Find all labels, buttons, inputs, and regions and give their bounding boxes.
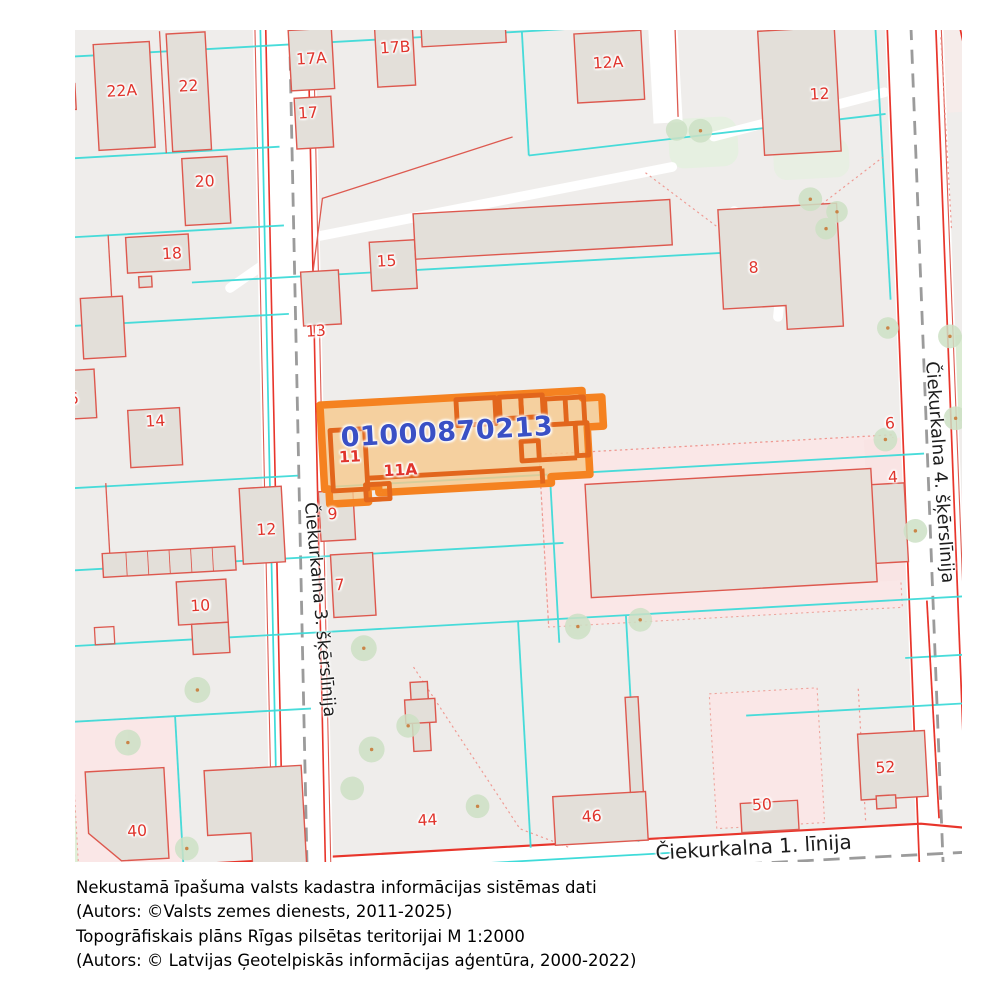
cadastre-map-page: 22A 22 17A 17B 17 20 18 12A 12 15 13 8 1… bbox=[0, 0, 1000, 1000]
attribution-block: Nekustamā īpašuma valsts kadastra inform… bbox=[76, 876, 636, 973]
map-canvas bbox=[75, 30, 962, 862]
map-viewport[interactable]: 22A 22 17A 17B 17 20 18 12A 12 15 13 8 1… bbox=[75, 30, 962, 862]
attribution-line: Topogrāfiskais plāns Rīgas pilsētas teri… bbox=[76, 925, 636, 949]
attribution-line: (Autors: © Latvijas Ģeotelpiskās informā… bbox=[76, 949, 636, 973]
attribution-line: (Autors: ©Valsts zemes dienests, 2011-20… bbox=[76, 900, 636, 924]
map-rotated-layer: 22A 22 17A 17B 17 20 18 12A 12 15 13 8 1… bbox=[75, 30, 962, 862]
attribution-line: Nekustamā īpašuma valsts kadastra inform… bbox=[76, 876, 636, 900]
